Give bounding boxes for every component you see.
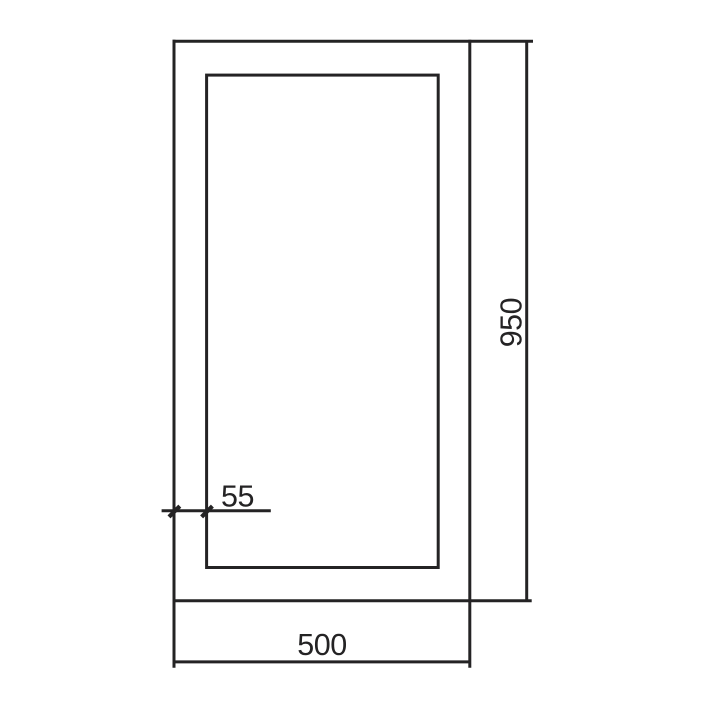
svg-text:500: 500 <box>297 628 346 662</box>
svg-text:950: 950 <box>495 298 529 347</box>
svg-text:55: 55 <box>221 480 254 514</box>
